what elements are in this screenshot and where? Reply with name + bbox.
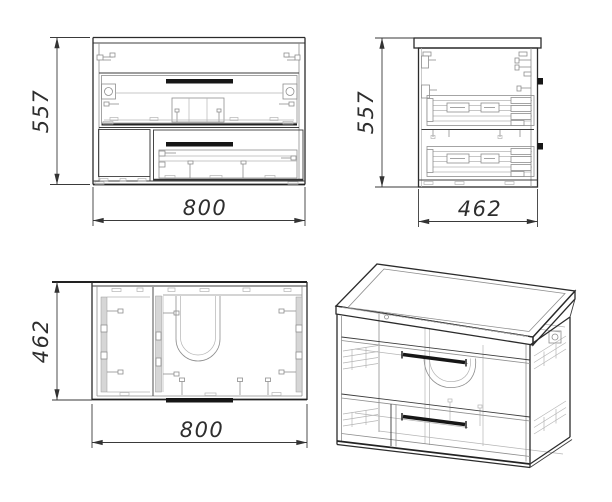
side-right-screws (515, 58, 531, 91)
front-top-rail-fittings (97, 53, 300, 60)
top-depth-dimension: 462 (29, 282, 92, 400)
lower-drawer-handle (166, 142, 233, 147)
iso-upper-drawer-handle (402, 351, 466, 367)
top-bottom-pins (120, 378, 281, 396)
side-upper-slide (427, 96, 534, 126)
front-width-dimension-label: 800 (183, 196, 228, 220)
side-depth-dimension: 462 (419, 189, 538, 227)
top-right-panel-strip (296, 297, 302, 392)
side-depth-dimension-label: 462 (458, 197, 503, 221)
side-view: 557 462 (354, 38, 543, 227)
side-upper-handle-end (538, 78, 544, 85)
front-upper-drawer (102, 76, 298, 125)
isometric-view (336, 264, 575, 468)
top-depth-dimension-label: 462 (29, 319, 53, 364)
drawing-svg: 557 800 (0, 0, 612, 502)
side-lower-slide (427, 147, 534, 177)
front-width-dimension: 800 (93, 187, 305, 226)
side-countertop (414, 38, 541, 48)
front-height-dimension: 557 (29, 38, 90, 185)
top-left-fittings (101, 297, 150, 392)
side-height-dimension: 557 (354, 38, 418, 187)
technical-drawing-canvas: 557 800 (0, 0, 612, 502)
sink-drain-cutout (176, 296, 220, 361)
side-lower-handle-end (538, 143, 544, 150)
side-height-dimension-label: 557 (354, 90, 378, 135)
front-lower-drawer (154, 130, 304, 181)
top-view-handle (166, 398, 233, 403)
top-left-panel-strip (101, 297, 107, 392)
iso-countertop (336, 264, 575, 345)
top-view: 462 800 (29, 282, 307, 448)
top-width-dimension: 800 (92, 404, 307, 448)
front-open-compartment (99, 130, 151, 182)
front-height-dimension-label: 557 (29, 89, 53, 134)
top-width-dimension-label: 800 (180, 418, 225, 442)
side-left-fittings (422, 56, 438, 98)
upper-drawer-handle (166, 79, 233, 84)
front-view: 557 800 (29, 38, 305, 227)
